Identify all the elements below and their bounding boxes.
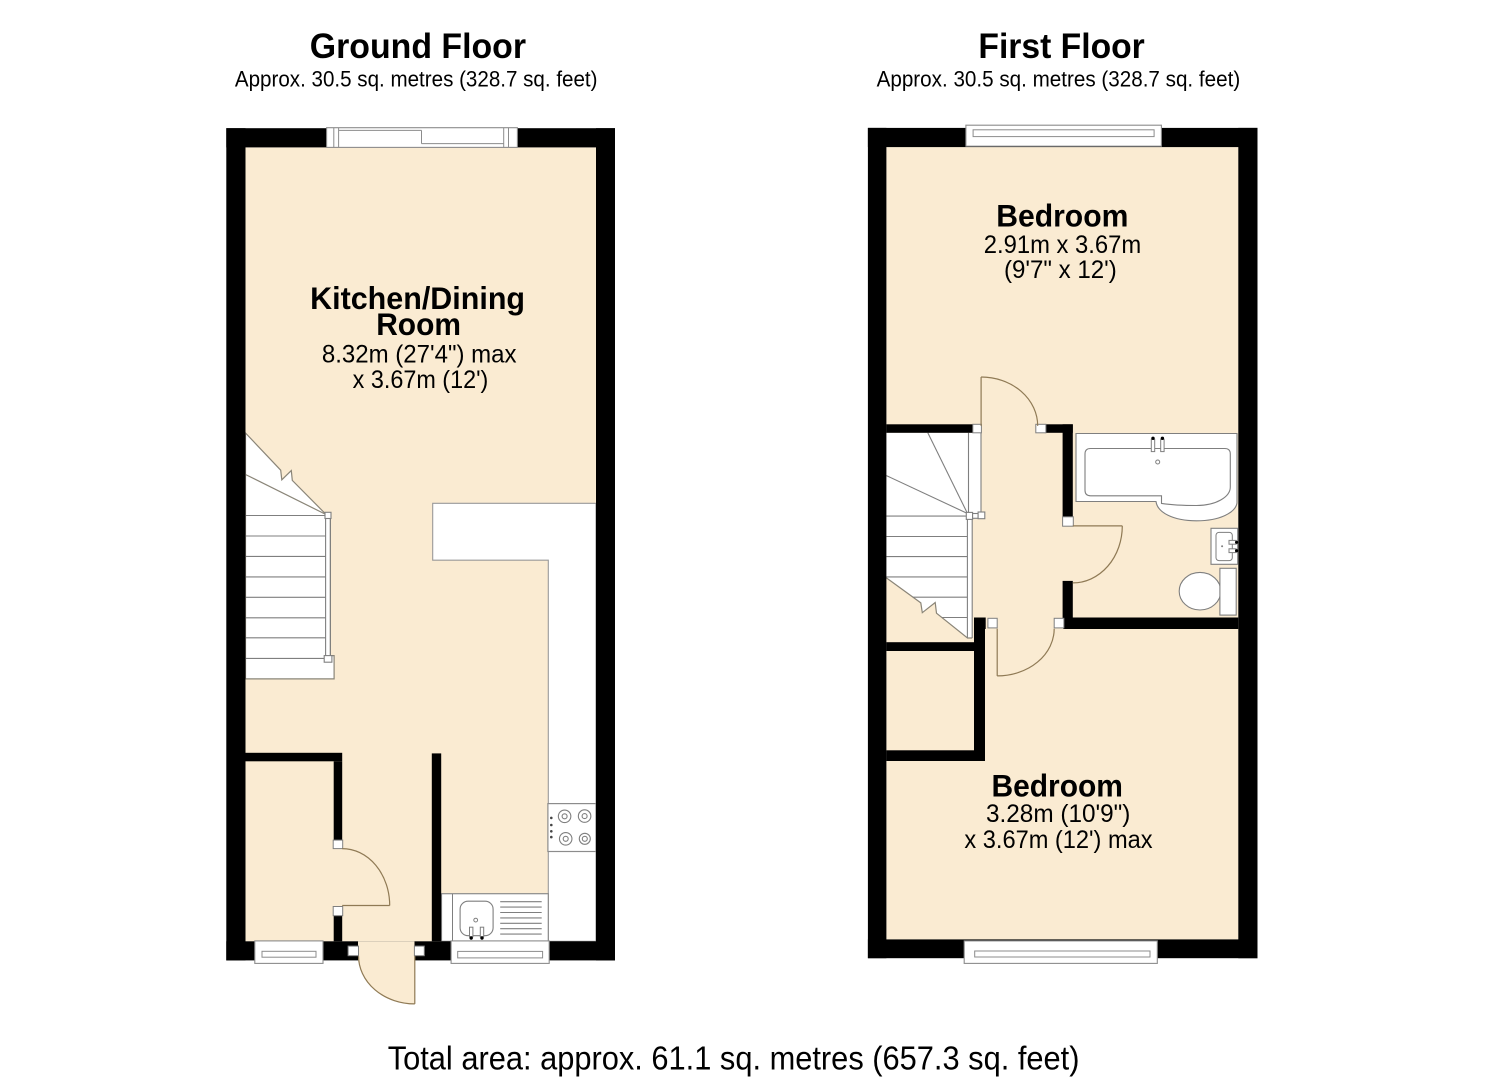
svg-text:8.32m (27'4") max: 8.32m (27'4") max bbox=[322, 340, 517, 368]
svg-text:Ground Floor: Ground Floor bbox=[310, 27, 527, 66]
svg-text:3.28m (10'9"): 3.28m (10'9") bbox=[986, 800, 1130, 828]
svg-text:Bedroom: Bedroom bbox=[991, 767, 1123, 803]
svg-text:x 3.67m (12'): x 3.67m (12') bbox=[353, 366, 489, 394]
svg-text:2.91m x 3.67m: 2.91m x 3.67m bbox=[984, 231, 1142, 259]
svg-text:x 3.67m (12') max: x 3.67m (12') max bbox=[964, 826, 1153, 854]
svg-text:(9'7" x 12'): (9'7" x 12') bbox=[1004, 256, 1117, 284]
svg-text:Approx. 30.5 sq. metres (328.7: Approx. 30.5 sq. metres (328.7 sq. feet) bbox=[235, 66, 598, 91]
svg-text:Total area: approx. 61.1 sq. m: Total area: approx. 61.1 sq. metres (657… bbox=[388, 1041, 1080, 1078]
svg-text:First Floor: First Floor bbox=[978, 27, 1145, 66]
svg-text:Room: Room bbox=[376, 306, 461, 342]
svg-text:Bedroom: Bedroom bbox=[996, 198, 1128, 234]
svg-text:Approx. 30.5 sq. metres (328.7: Approx. 30.5 sq. metres (328.7 sq. feet) bbox=[877, 66, 1241, 91]
